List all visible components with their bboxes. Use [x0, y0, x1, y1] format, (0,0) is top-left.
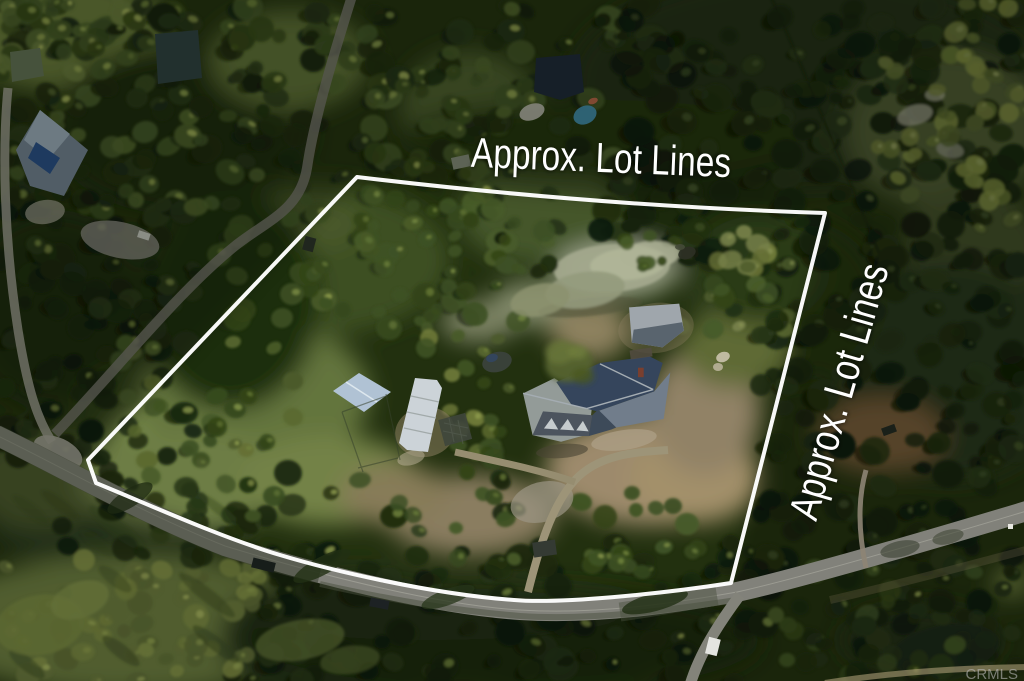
- svg-text:CRMLS: CRMLS: [965, 666, 1018, 681]
